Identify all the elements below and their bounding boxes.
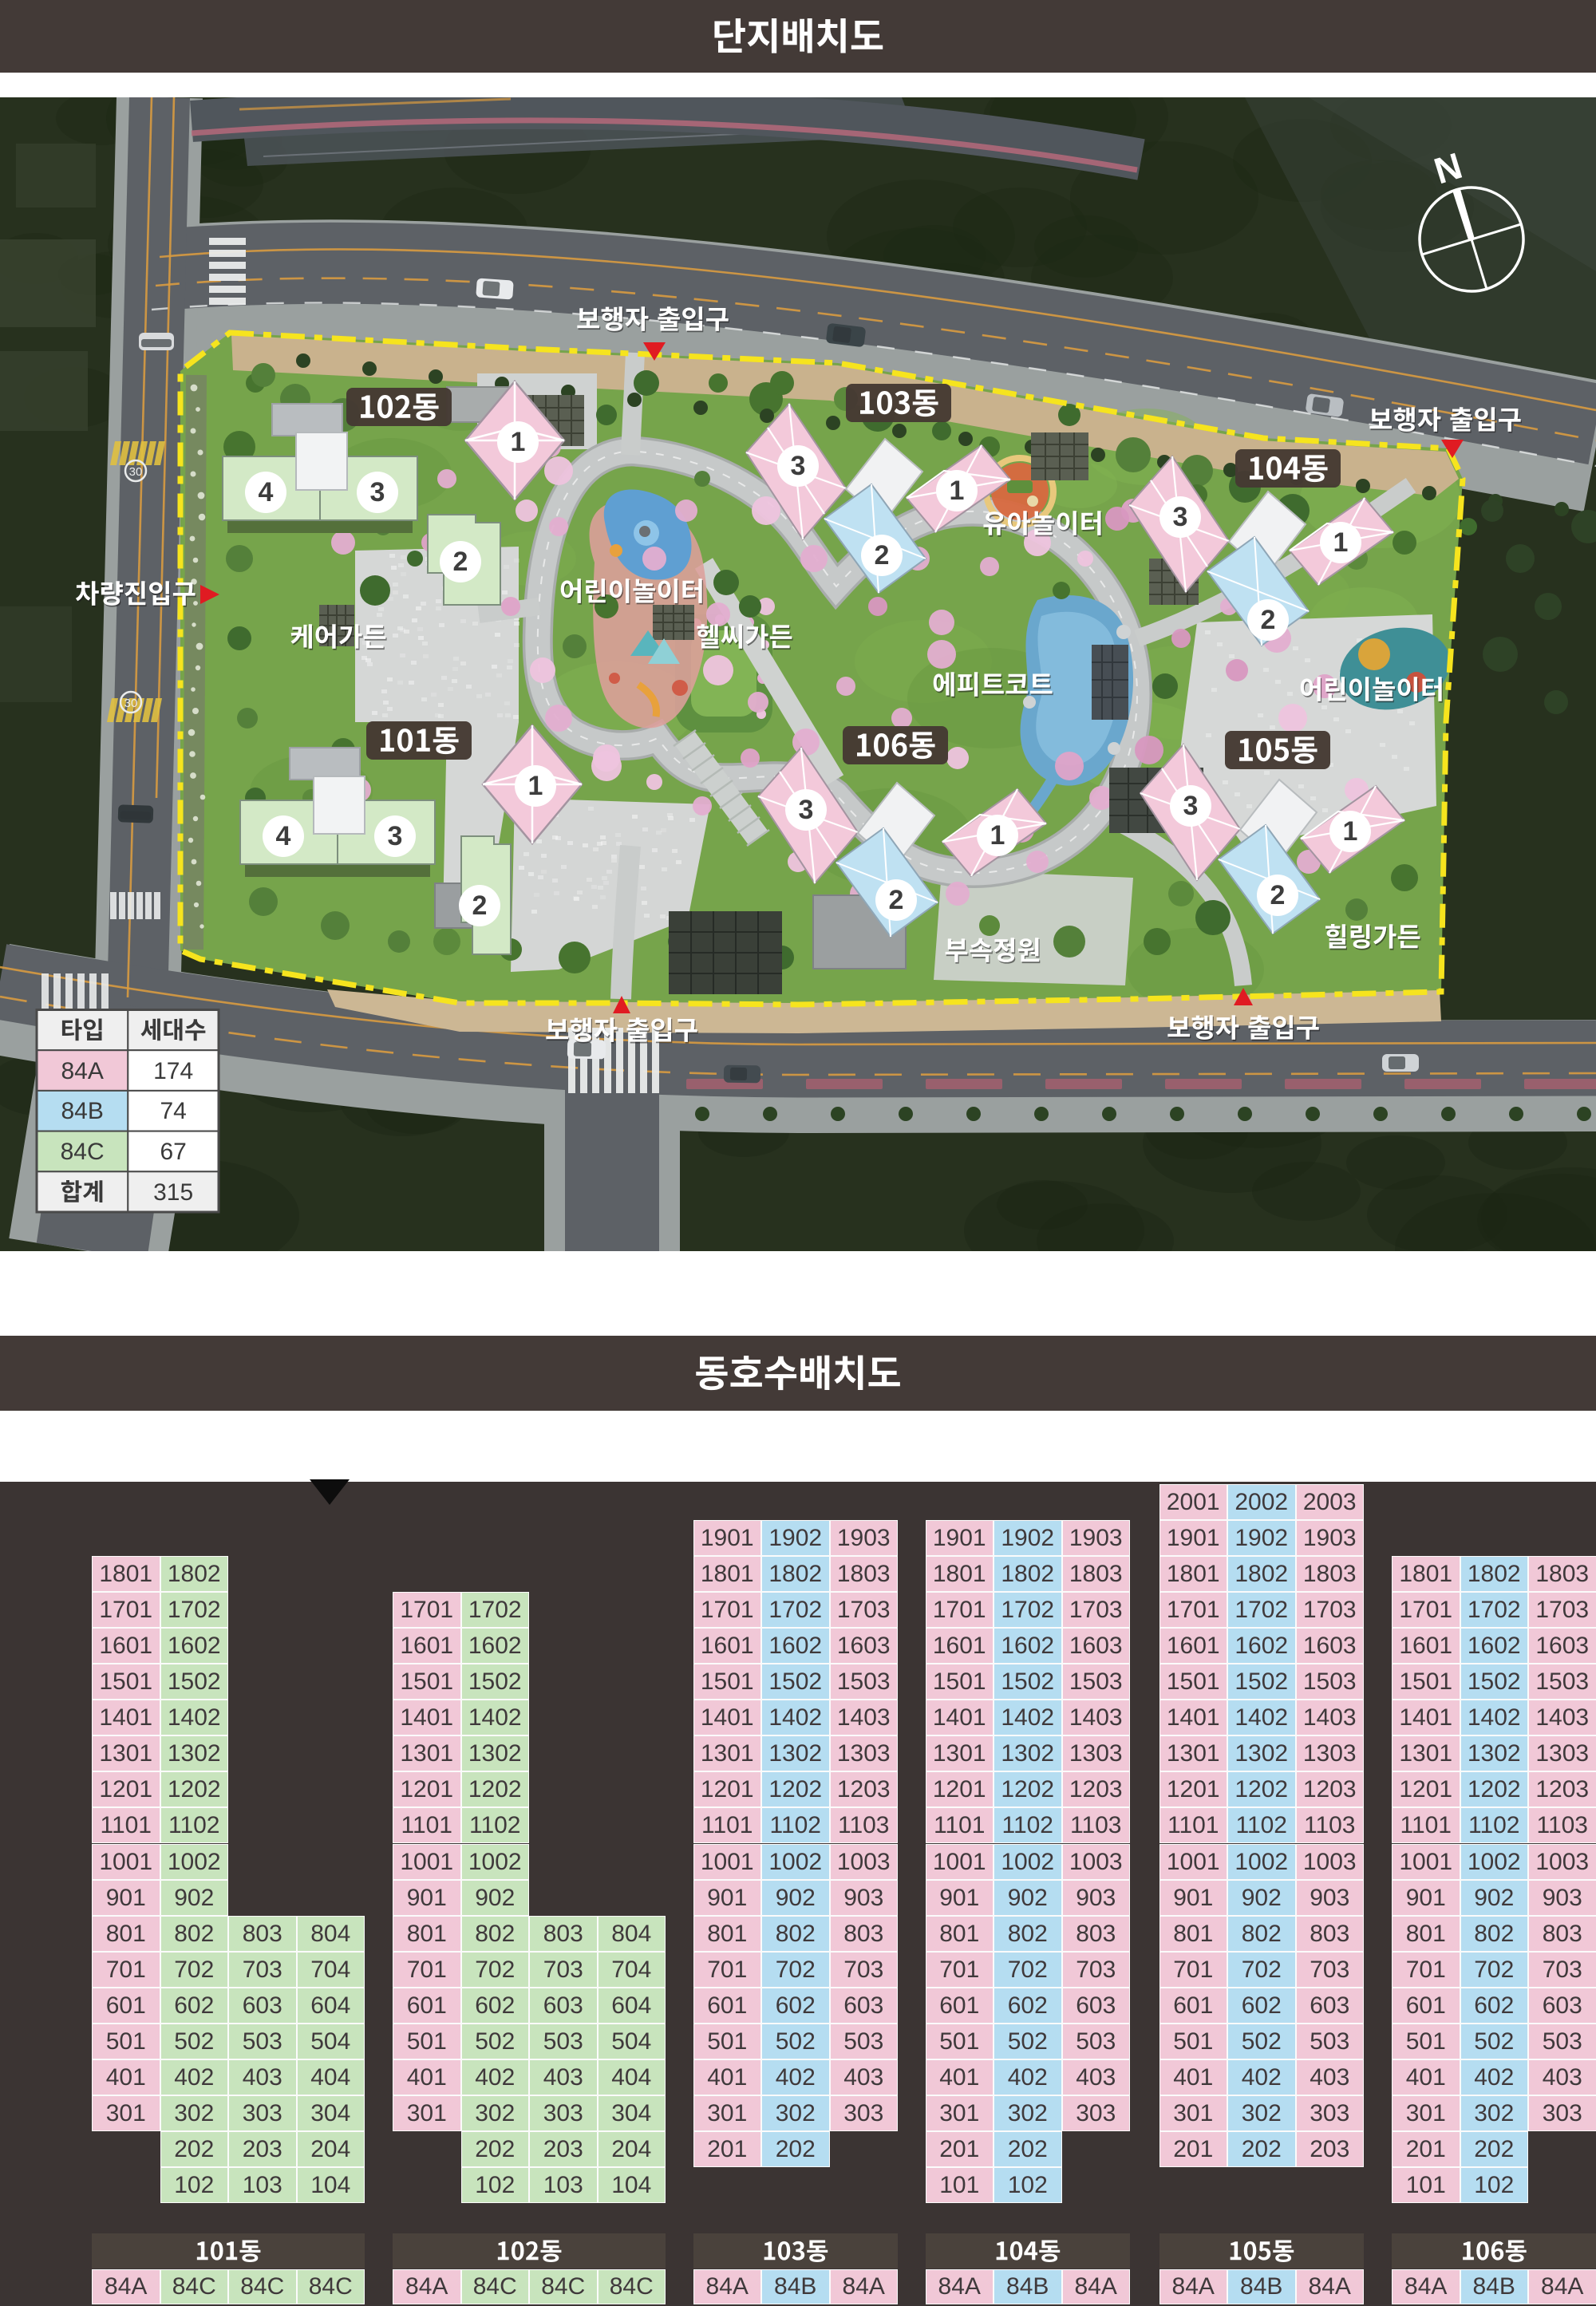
svg-text:3: 3 <box>388 821 403 851</box>
svg-text:84C: 84C <box>61 1139 105 1165</box>
svg-text:2: 2 <box>875 540 890 571</box>
svg-text:3: 3 <box>1183 791 1199 821</box>
svg-text:315: 315 <box>153 1179 193 1206</box>
svg-text:3: 3 <box>791 451 806 481</box>
svg-text:2: 2 <box>1270 880 1286 910</box>
svg-text:1: 1 <box>1333 527 1349 558</box>
svg-text:84B: 84B <box>61 1098 103 1124</box>
svg-text:1: 1 <box>511 427 526 457</box>
svg-text:30: 30 <box>124 697 138 710</box>
svg-text:3: 3 <box>1173 502 1188 532</box>
svg-text:2: 2 <box>889 885 904 915</box>
svg-text:84A: 84A <box>61 1058 103 1084</box>
svg-text:1: 1 <box>528 771 543 801</box>
svg-text:3: 3 <box>370 477 385 507</box>
svg-text:2: 2 <box>472 890 488 921</box>
svg-text:4: 4 <box>259 477 274 507</box>
svg-text:2: 2 <box>453 547 468 577</box>
svg-text:67: 67 <box>160 1139 186 1165</box>
svg-text:174: 174 <box>153 1058 193 1084</box>
svg-text:2: 2 <box>1261 605 1276 635</box>
svg-text:30: 30 <box>129 465 143 479</box>
svg-text:1: 1 <box>1343 816 1358 847</box>
svg-text:74: 74 <box>160 1098 186 1124</box>
svg-text:1: 1 <box>950 476 965 506</box>
svg-text:1: 1 <box>990 820 1005 851</box>
svg-text:3: 3 <box>799 795 814 825</box>
svg-text:4: 4 <box>276 821 291 851</box>
